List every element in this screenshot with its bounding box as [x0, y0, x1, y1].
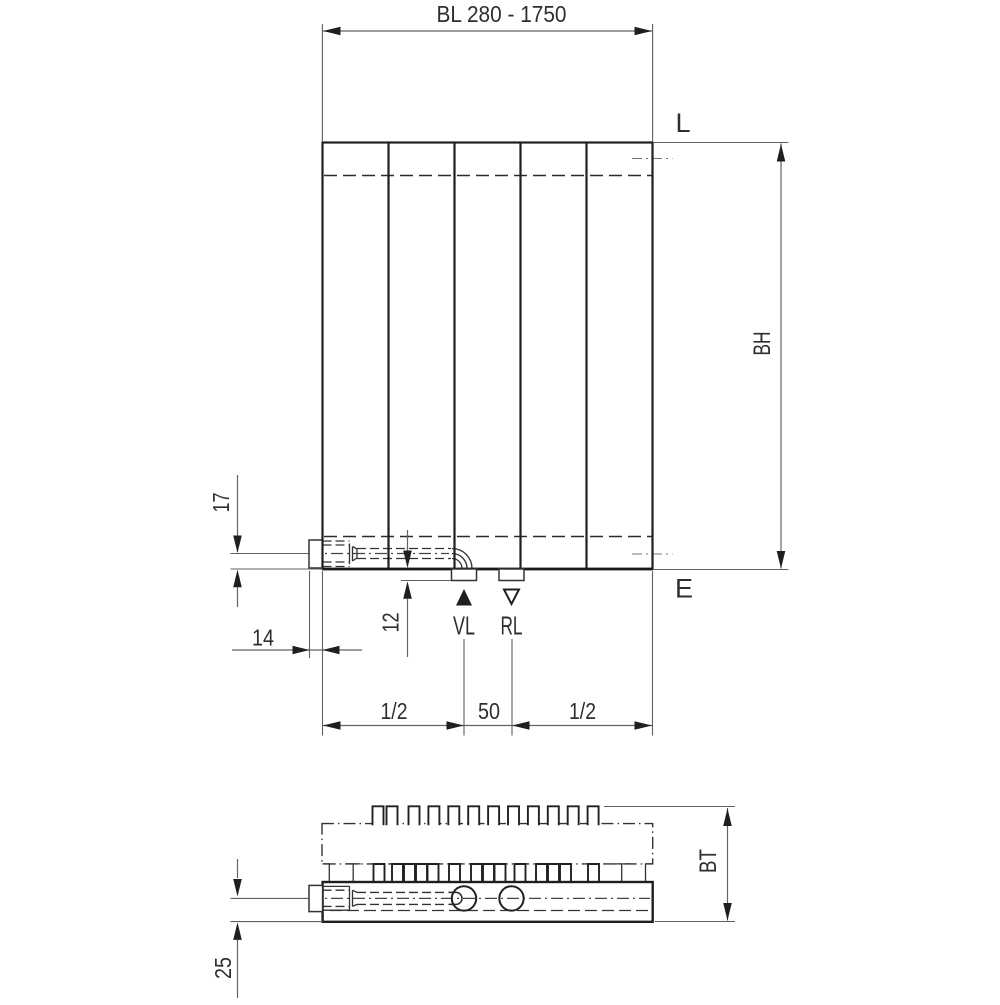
- svg-text:1/2: 1/2: [569, 698, 596, 724]
- svg-text:12: 12: [378, 613, 404, 633]
- svg-text:BH: BH: [749, 332, 776, 356]
- svg-text:17: 17: [208, 493, 234, 513]
- svg-text:BT: BT: [695, 849, 722, 873]
- svg-text:E: E: [675, 574, 693, 604]
- svg-text:RL: RL: [501, 613, 523, 641]
- svg-text:L: L: [675, 108, 690, 138]
- svg-text:14: 14: [252, 625, 274, 651]
- svg-text:BL 280 - 1750: BL 280 - 1750: [437, 1, 567, 27]
- svg-text:25: 25: [210, 957, 236, 979]
- svg-text:1/2: 1/2: [381, 698, 408, 724]
- svg-text:50: 50: [478, 698, 500, 724]
- svg-text:VL: VL: [453, 613, 475, 641]
